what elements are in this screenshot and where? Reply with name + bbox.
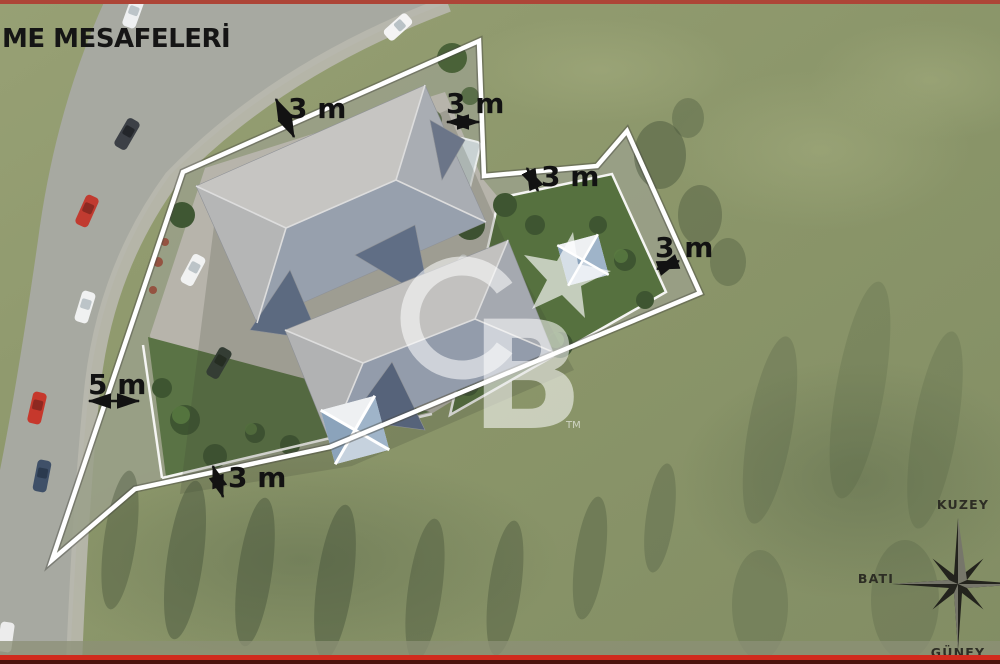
setback-label-top-left: 3 m — [288, 92, 346, 125]
site-plan-screenshot: B TM 3 m 3 m 3 m 3 m 5 m 3 m KUZEY BATI … — [0, 0, 1000, 664]
bottom-red-bar — [0, 655, 1000, 660]
bottom-verge — [0, 641, 1000, 656]
bottom-red-bar-edge — [0, 660, 1000, 664]
setback-label-right: 3 m — [655, 231, 713, 264]
top-red-bar — [0, 0, 1000, 4]
setback-label-bottom: 3 m — [228, 461, 286, 494]
site-plan-svg: B TM 3 m 3 m 3 m 3 m 5 m 3 m KUZEY BATI … — [0, 0, 1000, 664]
page-title: ME MESAFELERİ — [2, 22, 230, 54]
setback-label-road: 5 m — [88, 368, 146, 401]
setback-label-mid-notch: 3 m — [541, 160, 599, 193]
watermark-tm: TM — [565, 420, 581, 431]
watermark-b: B — [470, 290, 584, 464]
setback-label-top-notch: 3 m — [446, 87, 504, 120]
compass-label-north: KUZEY — [937, 497, 989, 512]
compass-label-west: BATI — [858, 571, 894, 586]
